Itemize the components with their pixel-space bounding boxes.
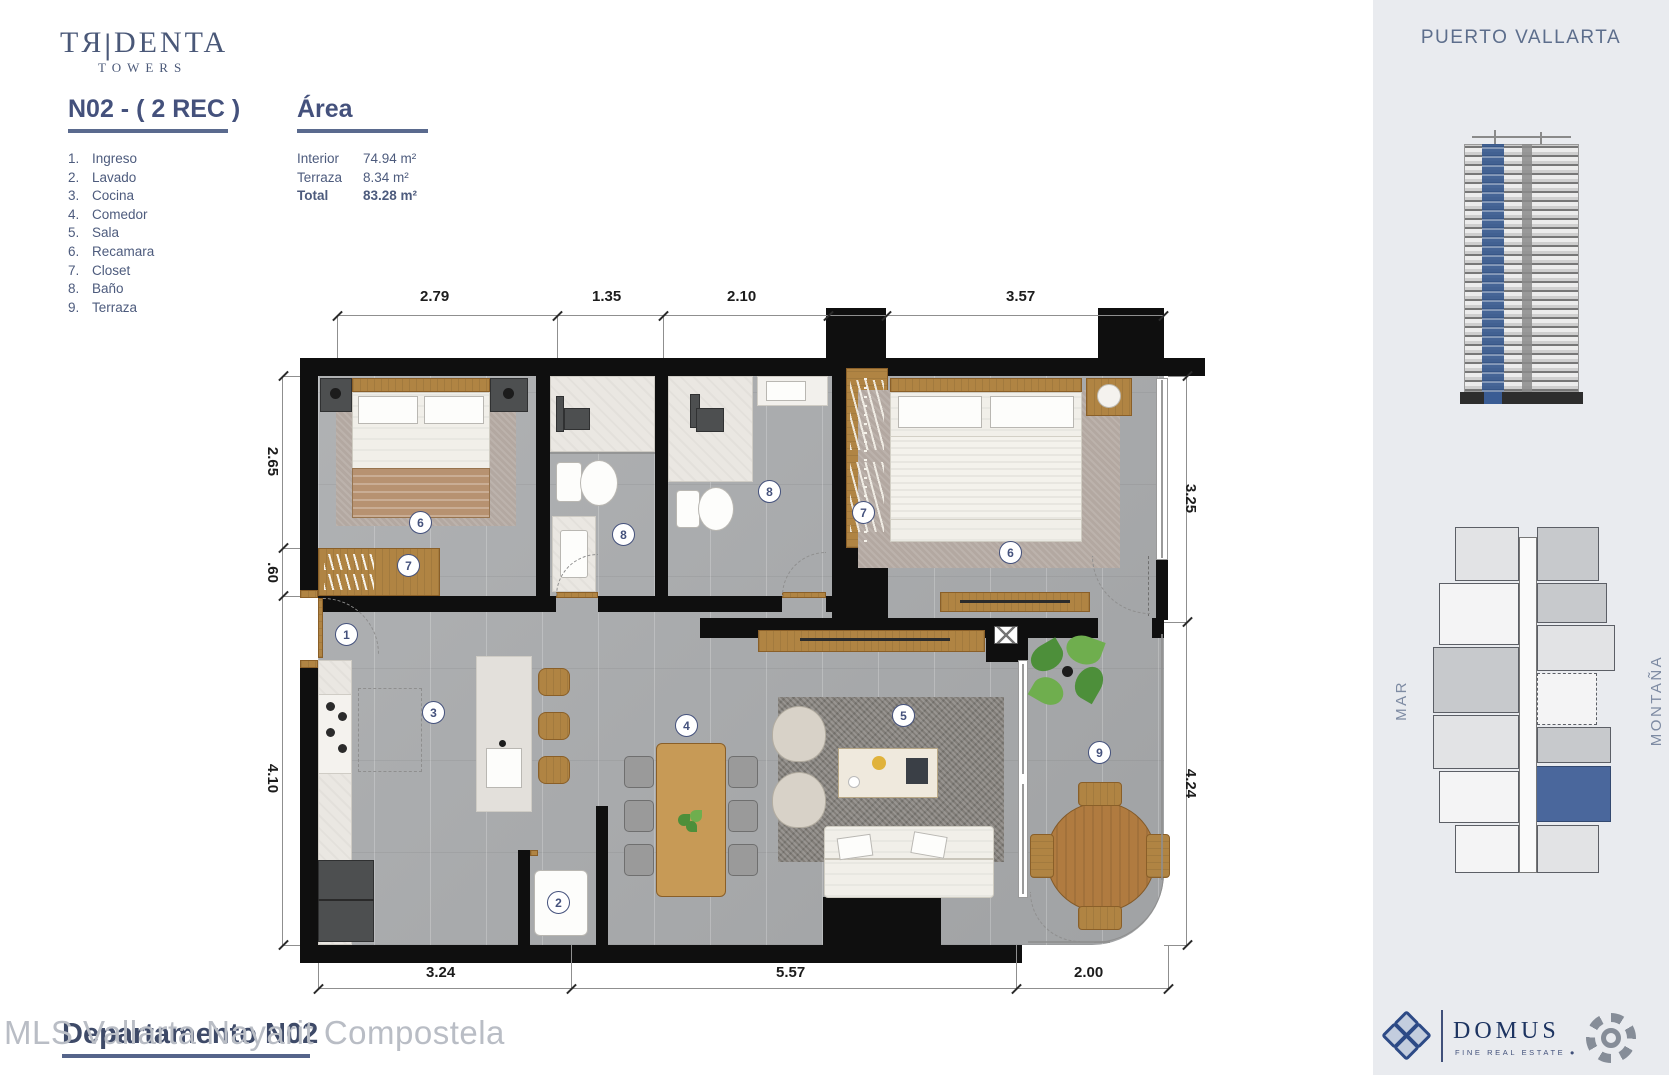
terrace-edge-bottom — [1028, 941, 1110, 943]
dining-chair — [624, 756, 654, 788]
terrace-plant — [1026, 636, 1110, 722]
tower-core — [1522, 144, 1532, 392]
terrace-slider-panel2 — [1022, 784, 1024, 894]
domus-tagline: FINE REAL ESTATE ● — [1455, 1048, 1577, 1057]
dim-ext — [1016, 945, 1017, 988]
floorplate-unit — [1455, 527, 1519, 581]
closet1-hangers-icon — [324, 554, 374, 570]
living-tv-console — [758, 630, 985, 652]
kitchen-stove-top — [318, 694, 352, 774]
bath1-glass-divider — [550, 452, 655, 454]
entry-jamb-bottom — [300, 660, 318, 668]
wall-hall-b — [598, 596, 782, 612]
terrace-chair-n — [1078, 782, 1122, 806]
floorplate-unit — [1537, 727, 1611, 763]
kitchen-island-sink — [486, 748, 522, 788]
bedroom2-lamp-icon — [1097, 384, 1121, 408]
bedroom1-lamp-left-icon — [330, 388, 341, 399]
living-armchair-2 — [772, 772, 826, 828]
dim-line-left — [282, 376, 283, 945]
wall-left-lower — [300, 660, 318, 963]
coffee-table-flowers-icon — [872, 756, 886, 770]
dim-left-1: 2.65 — [264, 447, 281, 476]
floorplate-unit — [1537, 527, 1599, 581]
bedroom1-pillow-left — [358, 396, 418, 424]
bath1-shower-valve — [556, 396, 564, 432]
floorplate-core — [1537, 673, 1597, 725]
kitchen-fridge — [318, 860, 374, 942]
island-stool-2 — [538, 712, 570, 740]
marker-recamara-1: 6 — [409, 511, 432, 534]
kitchen-island — [476, 656, 532, 812]
laundry-door-jamb — [530, 850, 538, 856]
bedroom2-pillow-right — [990, 396, 1074, 428]
dim-bottom-1: 3.24 — [426, 964, 455, 981]
wall-bed1-bath1 — [536, 376, 550, 596]
stove-burner-icon — [338, 744, 347, 753]
bedroom2-headboard — [890, 378, 1082, 392]
marker-comedor: 4 — [675, 714, 698, 737]
marker-closet-2: 7 — [852, 501, 875, 524]
bedroom1-lamp-right-icon — [503, 388, 514, 399]
dining-chair — [728, 800, 758, 832]
dim-left-2: .60 — [264, 562, 281, 583]
living-armchair-1 — [772, 706, 826, 762]
marker-cocina: 3 — [422, 701, 445, 724]
bath1-shower-head — [564, 408, 590, 430]
stove-burner-icon — [326, 728, 335, 737]
bath2-toilet-tank — [676, 490, 700, 528]
kitchen-faucet-icon — [499, 740, 506, 747]
wall-laundry-right — [596, 806, 608, 945]
bath1-toilet-bowl — [580, 460, 618, 506]
floorplate-unit — [1439, 583, 1519, 645]
dim-ext — [663, 315, 664, 358]
dining-chair — [624, 844, 654, 876]
stove-burner-icon — [326, 702, 335, 711]
wall-bath1-bath2 — [655, 376, 668, 596]
marker-bano-2: 8 — [758, 480, 781, 503]
marker-ingreso: 1 — [335, 623, 358, 646]
dim-top-1: 2.79 — [420, 288, 449, 305]
wall-bath2-closet — [832, 376, 846, 618]
dim-top-2: 1.35 — [592, 288, 621, 305]
tower-antenna-icon2 — [1540, 132, 1542, 144]
wall-bedroom2-right — [1156, 560, 1168, 620]
marker-terraza: 9 — [1088, 741, 1111, 764]
wall-left-upper — [300, 358, 318, 598]
wall-bottom-thick — [823, 897, 941, 963]
sidebar-location: PUERTO VALLARTA — [1373, 27, 1669, 49]
dim-ext — [557, 315, 558, 358]
dim-top-3: 2.10 — [727, 288, 756, 305]
floorplate-unit — [1433, 647, 1519, 713]
entry-jamb-top — [300, 590, 318, 598]
bedroom2-duvet — [890, 436, 1082, 520]
terrace-chair-e — [1146, 834, 1170, 878]
floorplan-page: TЯ|DENTA TOWERS N02 - ( 2 REC ) 1.Ingres… — [0, 0, 1669, 1080]
bath1-toilet-tank — [556, 462, 582, 502]
floorplate-unit — [1537, 825, 1599, 873]
stove-burner-icon — [338, 712, 347, 721]
dim-right-2: 4.24 — [1182, 769, 1199, 798]
tower-base-highlight — [1484, 392, 1502, 404]
floorplate-unit — [1537, 625, 1615, 671]
dim-line-right — [1186, 376, 1187, 945]
dim-bottom-2: 5.57 — [776, 964, 805, 981]
floorplate-corridor — [1519, 537, 1537, 873]
bedroom1-pillow-right — [424, 396, 484, 424]
dim-ext — [318, 963, 319, 988]
bath2-sink — [766, 381, 806, 401]
label-montana: MONTAÑA — [1648, 655, 1665, 746]
dim-top-4: 3.57 — [1006, 288, 1035, 305]
bedroom1-headboard — [352, 378, 490, 392]
dim-left-3: 4.10 — [264, 764, 281, 793]
marker-bano-1: 8 — [612, 523, 635, 546]
kitchen-upper-cabinet-dashed — [358, 688, 422, 772]
dining-chair — [624, 800, 654, 832]
bedroom2-pillow-left — [898, 396, 982, 428]
tower-antenna-icon — [1494, 130, 1496, 144]
terrace-slider-panel1 — [1022, 664, 1024, 774]
dim-line-bottom — [318, 988, 1168, 989]
sidebar: PUERTO VALLARTA MAR — [1373, 0, 1669, 1075]
dim-ext — [571, 945, 572, 988]
wall-laundry-left — [518, 850, 530, 945]
marker-closet-1: 7 — [397, 554, 420, 577]
bath2-shower-head — [696, 408, 724, 432]
footer-title-rule — [62, 1054, 310, 1058]
domus-knot-icon — [1385, 1014, 1429, 1058]
terrace-chair-w — [1030, 834, 1054, 878]
coffee-table-book-icon — [906, 758, 928, 784]
coffee-table-plate-icon — [848, 776, 860, 788]
dining-chair — [728, 844, 758, 876]
wall-hall-c — [826, 596, 836, 612]
dim-bottom-3: 2.00 — [1074, 964, 1103, 981]
tower-highlighted-stack — [1482, 144, 1504, 392]
label-mar: MAR — [1393, 680, 1410, 721]
domus-name: DOMUS — [1453, 1018, 1560, 1045]
walkin-closet-hangers-icon — [850, 380, 884, 450]
dim-ext — [1168, 945, 1169, 988]
terrace-edge-right — [1161, 634, 1163, 880]
kitchen-fridge-divider — [318, 899, 374, 901]
dim-ext — [1164, 622, 1186, 623]
dining-centerpiece-plant — [678, 808, 704, 834]
dim-line-top — [337, 315, 1163, 316]
terrace-chair-s — [1078, 906, 1122, 930]
tower-base — [1460, 392, 1583, 404]
mls-watermark: MLS Vallarta Nayarit Compostela — [4, 1014, 505, 1052]
tower-roof-rail — [1472, 136, 1571, 138]
floorplate-unit-highlighted — [1531, 766, 1611, 822]
floorplate-diagram — [1427, 527, 1627, 883]
dining-chair — [728, 756, 758, 788]
dim-right-1: 3.25 — [1182, 484, 1199, 513]
domus-separator — [1441, 1010, 1443, 1062]
bedroom2-tv-icon — [960, 600, 1070, 603]
wall-top — [300, 358, 1205, 376]
floorplate-unit — [1537, 583, 1607, 623]
marker-lavado: 2 — [547, 891, 570, 914]
marker-recamara-2: 6 — [999, 541, 1022, 564]
tower-illustration — [1460, 130, 1583, 408]
floorplate-unit — [1433, 715, 1519, 769]
bedroom2-window-mullion — [1161, 380, 1163, 558]
domus-logo: DOMUS FINE REAL ESTATE ● — [1385, 1008, 1585, 1066]
living-soundbar-icon — [800, 638, 950, 641]
island-stool-3 — [538, 756, 570, 784]
sofa-pillow-icon — [837, 834, 874, 861]
dim-ext — [337, 315, 338, 358]
floorplate-unit — [1455, 825, 1519, 873]
bath2-toilet-bowl — [698, 487, 734, 531]
island-stool-1 — [538, 668, 570, 696]
floorplate-unit — [1439, 771, 1519, 823]
realtor-emblem-icon — [1586, 1013, 1636, 1063]
ac-unit-icon — [994, 626, 1018, 644]
closet1-hangers-icon2 — [324, 574, 374, 590]
marker-sala: 5 — [892, 704, 915, 727]
